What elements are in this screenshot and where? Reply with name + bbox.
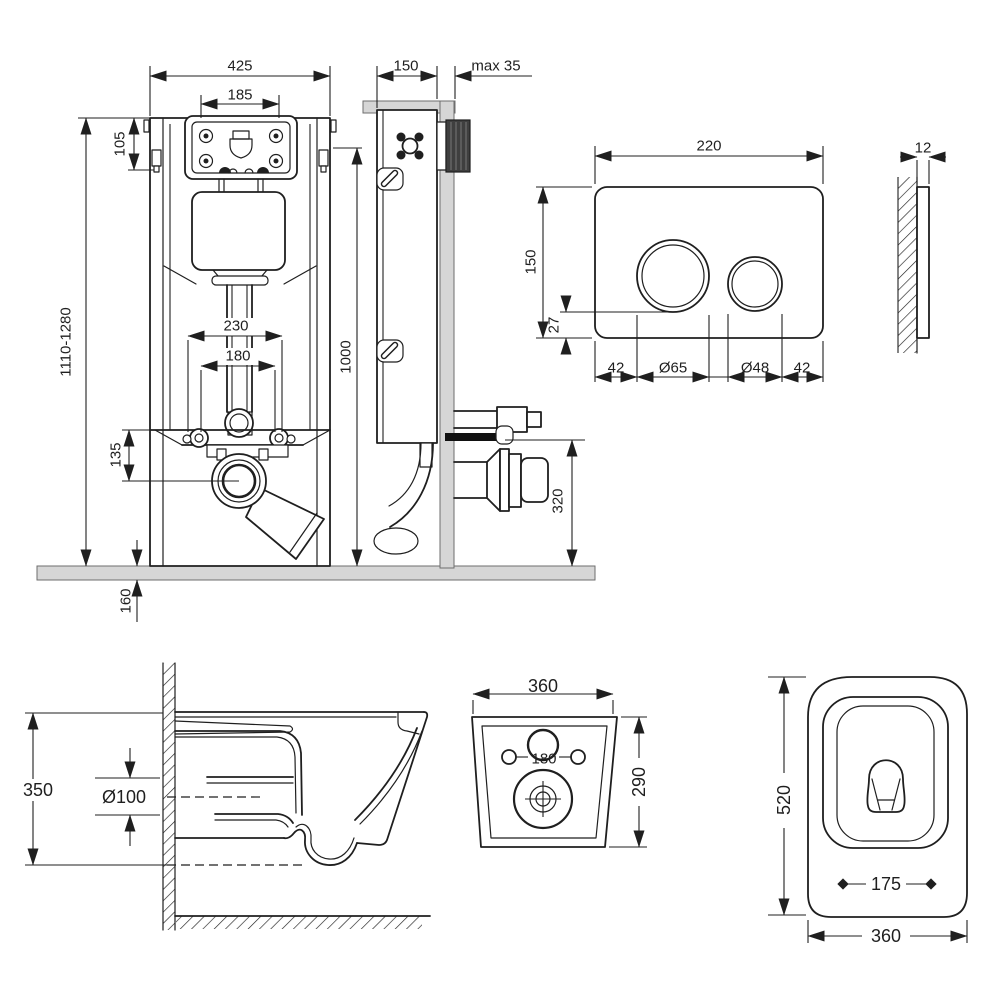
- cistern-tank: [192, 192, 285, 270]
- dim-seat-hole-spacing: 175: [871, 874, 901, 894]
- floor-slab: [37, 566, 595, 580]
- dim-frame-width: 425: [227, 58, 252, 75]
- rim-inner: [837, 706, 934, 841]
- dim-outlet-drop: 135: [108, 442, 125, 467]
- dim-opening-height: 105: [112, 131, 129, 156]
- flush-plate-side-view: 12: [898, 140, 946, 354]
- frame-side-body: [377, 110, 437, 443]
- bowl-profile: [167, 712, 427, 865]
- bowl-side-section: 350 Ø100: [17, 663, 430, 930]
- flush-plate-front-view: 220 150 27 42 Ø65 Ø48 42: [523, 138, 824, 383]
- dim-floor-depth: 160: [118, 588, 135, 613]
- dim-big-button-dia: Ø65: [659, 360, 687, 377]
- dim-top-width: 360: [871, 926, 901, 946]
- fixing-hole-right: [571, 750, 585, 764]
- dim-plate-height: 150: [523, 249, 540, 274]
- mounting-slot-lower: [377, 340, 403, 362]
- bowl-side-dimensions: 350 Ø100: [17, 713, 167, 865]
- frame-front-view: 425 185 105 1110-1280 230 180: [37, 58, 595, 623]
- dim-frame-depth: 150: [393, 58, 418, 75]
- installation-drawing: 425 185 105 1110-1280 230 180: [0, 0, 1000, 1000]
- dim-rear-width: 360: [528, 676, 558, 696]
- dim-hole-spacing: 180: [531, 751, 556, 768]
- dim-rear-height: 290: [629, 767, 649, 797]
- technical-drawing-sheet: 425 185 105 1110-1280 230 180: [0, 0, 1000, 1000]
- wall-hatch: [898, 177, 917, 353]
- dim-plate-thickness: 12: [915, 140, 932, 157]
- mounting-slot-upper: [377, 168, 403, 190]
- dim-fixing-height: 1000: [338, 340, 355, 373]
- dim-wall-max: max 35: [471, 58, 520, 75]
- drain-outlet-hole: [514, 770, 572, 828]
- inlet-connector: [445, 407, 541, 444]
- dim-bend-width: 230: [223, 318, 248, 335]
- dim-outlet-height: 320: [550, 488, 567, 513]
- dim-opening-width: 185: [227, 87, 252, 104]
- dim-small-button-dia: Ø48: [741, 360, 769, 377]
- plate-profile: [917, 187, 929, 338]
- dim-margin-right: 42: [794, 360, 811, 377]
- floor-hatch: [176, 916, 422, 929]
- drain-connector: [454, 449, 548, 511]
- dim-drain-diameter: Ø100: [102, 787, 146, 807]
- left-adjust-bracket: [152, 150, 161, 166]
- frame-side-view: 150 max 35 1000 320: [333, 58, 585, 569]
- tank-outlet-seat: [212, 276, 268, 285]
- right-adjust-bracket: [319, 150, 328, 166]
- dim-plate-width: 220: [696, 138, 721, 155]
- bowl-rear-view: 180 360 290: [472, 676, 650, 847]
- dim-button-bottom-gap: 27: [546, 317, 563, 334]
- flush-valve-clip: [233, 131, 249, 139]
- dim-bowl-height: 350: [23, 780, 53, 800]
- dim-top-length: 520: [774, 785, 794, 815]
- drain-elbow-side: [374, 443, 433, 554]
- fixing-hole-left: [502, 750, 516, 764]
- bowl-top-view: 520 175 360: [768, 677, 967, 946]
- dim-margin-left: 42: [608, 360, 625, 377]
- dim-height-range: 1110-1280: [58, 307, 75, 377]
- flush-plate-recess-box: [446, 120, 470, 172]
- dim-bend-inner-width: 180: [225, 348, 250, 365]
